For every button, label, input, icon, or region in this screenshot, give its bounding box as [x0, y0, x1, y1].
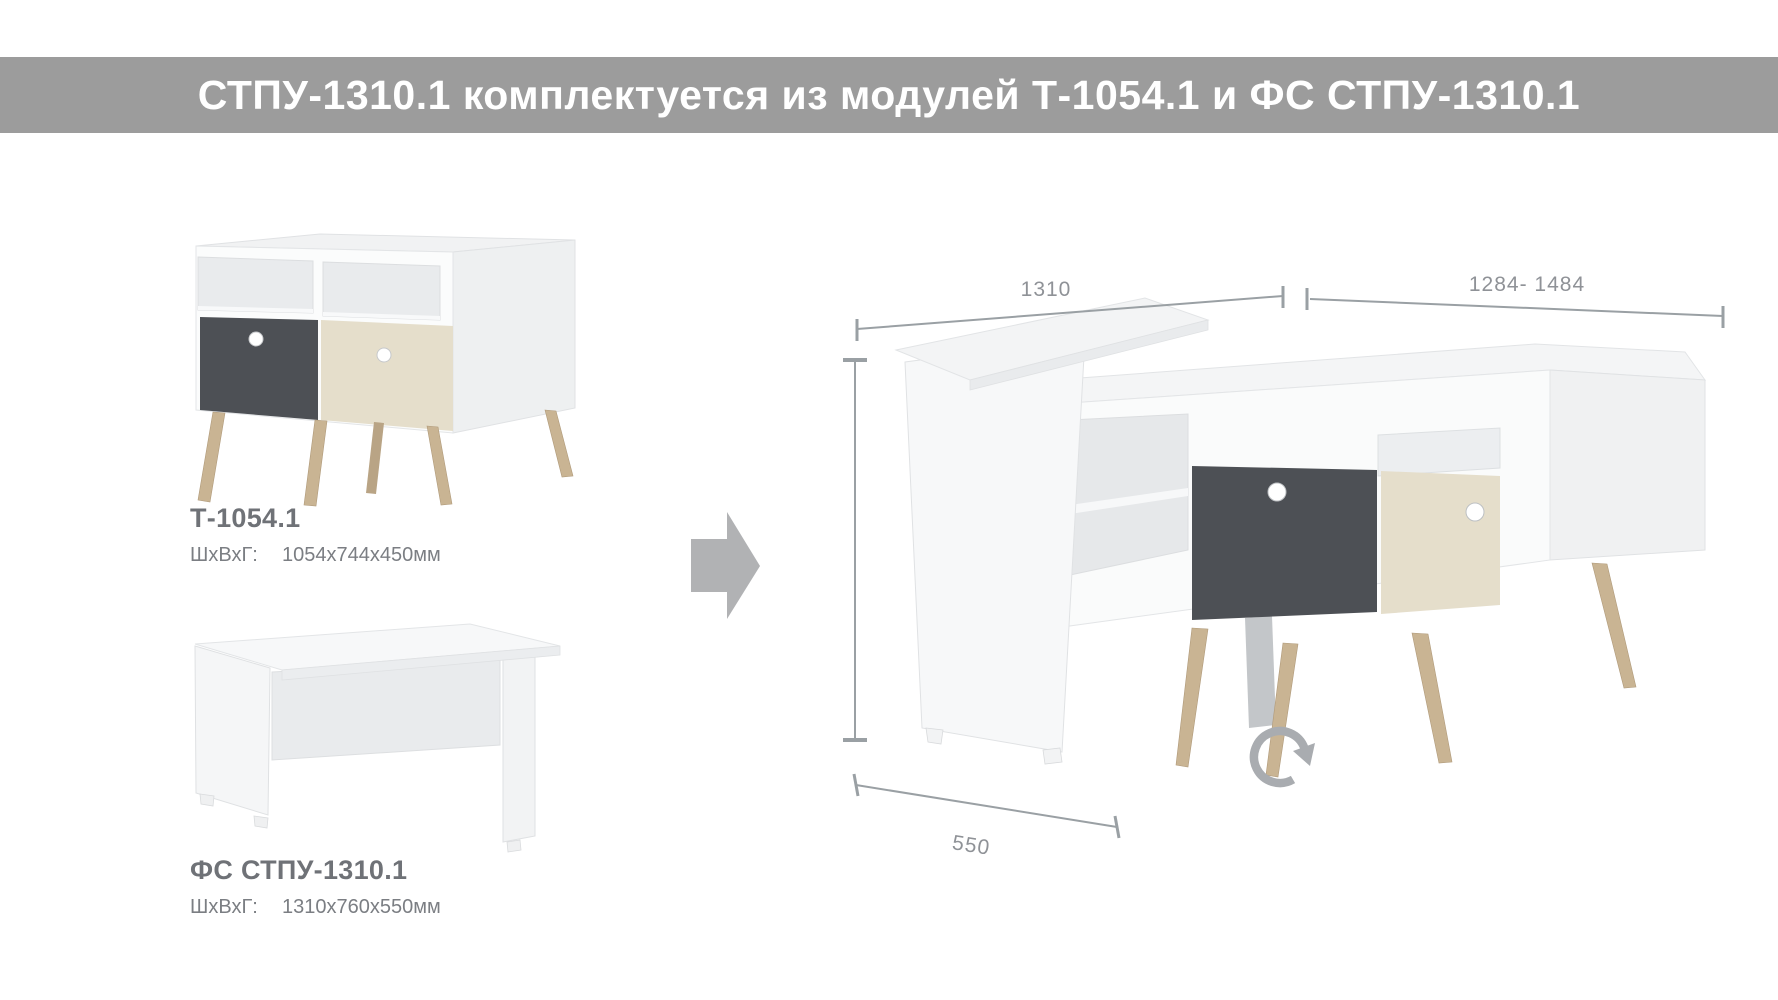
dim-line [856, 785, 1117, 827]
module-2-dims-value: 1310х760х550мм [282, 896, 441, 919]
module-2-dims: ШхВхГ: 1310х760х550мм [190, 896, 441, 919]
knob-dark-drawer [1268, 483, 1286, 501]
shelf-opening-left [198, 257, 313, 313]
header-banner: СТПУ-1310.1 комплектуется из модулей Т-1… [0, 57, 1778, 133]
module-2-dims-label: ШхВхГ: [190, 896, 282, 919]
desk-foot [254, 816, 268, 828]
rotate-clockwise-icon [1254, 731, 1315, 783]
open-cubby [1378, 428, 1500, 476]
dim-label-1310: 1310 [1021, 278, 1072, 301]
cabinet-side-face [453, 240, 575, 433]
desk-side-panel [905, 338, 1085, 752]
leg-front-mid [304, 420, 327, 506]
drawer-beige [1381, 471, 1500, 614]
knob-beige-drawer [1466, 503, 1484, 521]
module-1-name: Т-1054.1 [190, 503, 300, 534]
dim-label-550: 550 [951, 831, 992, 860]
desk-right-panel [503, 653, 535, 842]
dim-550: 550 [854, 774, 1119, 860]
leg-front-left [198, 412, 225, 502]
cabinet-side-face [1550, 370, 1705, 560]
module-1-dims: ШхВхГ: 1054х744х450мм [190, 544, 441, 567]
assembled-cabinet [1055, 344, 1705, 777]
leg-front-right [427, 426, 452, 505]
dim-line [1310, 299, 1723, 316]
desk-foot [926, 728, 943, 744]
banner-title: СТПУ-1310.1 комплектуется из модулей Т-1… [198, 72, 1580, 119]
drawer-beige [321, 320, 453, 431]
shelf-opening-right [323, 262, 440, 320]
desk-foot [507, 840, 521, 852]
dim-tick [854, 774, 858, 796]
cabinet-leg [1412, 633, 1452, 763]
module-2-image [170, 618, 590, 858]
desk-figure [195, 624, 560, 852]
module-1-image [170, 212, 590, 512]
leg-back-mid [366, 422, 384, 494]
tv-stand-figure [196, 234, 575, 506]
module-2-name: ФС СТПУ-1310.1 [190, 855, 407, 886]
desk-far-leg [1245, 616, 1276, 728]
module-1-dims-label: ШхВхГ: [190, 544, 282, 567]
knob-right [377, 348, 391, 362]
assembled-view: 1310 1284- 1484 550 [740, 220, 1778, 900]
desk-foot [200, 794, 214, 806]
knob-left [249, 332, 263, 346]
dim-label-1284-1484: 1284- 1484 [1469, 273, 1585, 296]
cabinet-leg [1592, 563, 1636, 688]
desk-foot [1043, 748, 1062, 764]
dim-tick [1115, 816, 1119, 838]
module-1-dims-value: 1054х744х450мм [282, 544, 441, 567]
dim-1284-1484: 1284- 1484 [1307, 273, 1723, 328]
cabinet-leg [1176, 628, 1208, 767]
leg-back-right [545, 410, 573, 477]
dim-height-line [843, 360, 867, 740]
desk-left-panel [195, 646, 270, 815]
